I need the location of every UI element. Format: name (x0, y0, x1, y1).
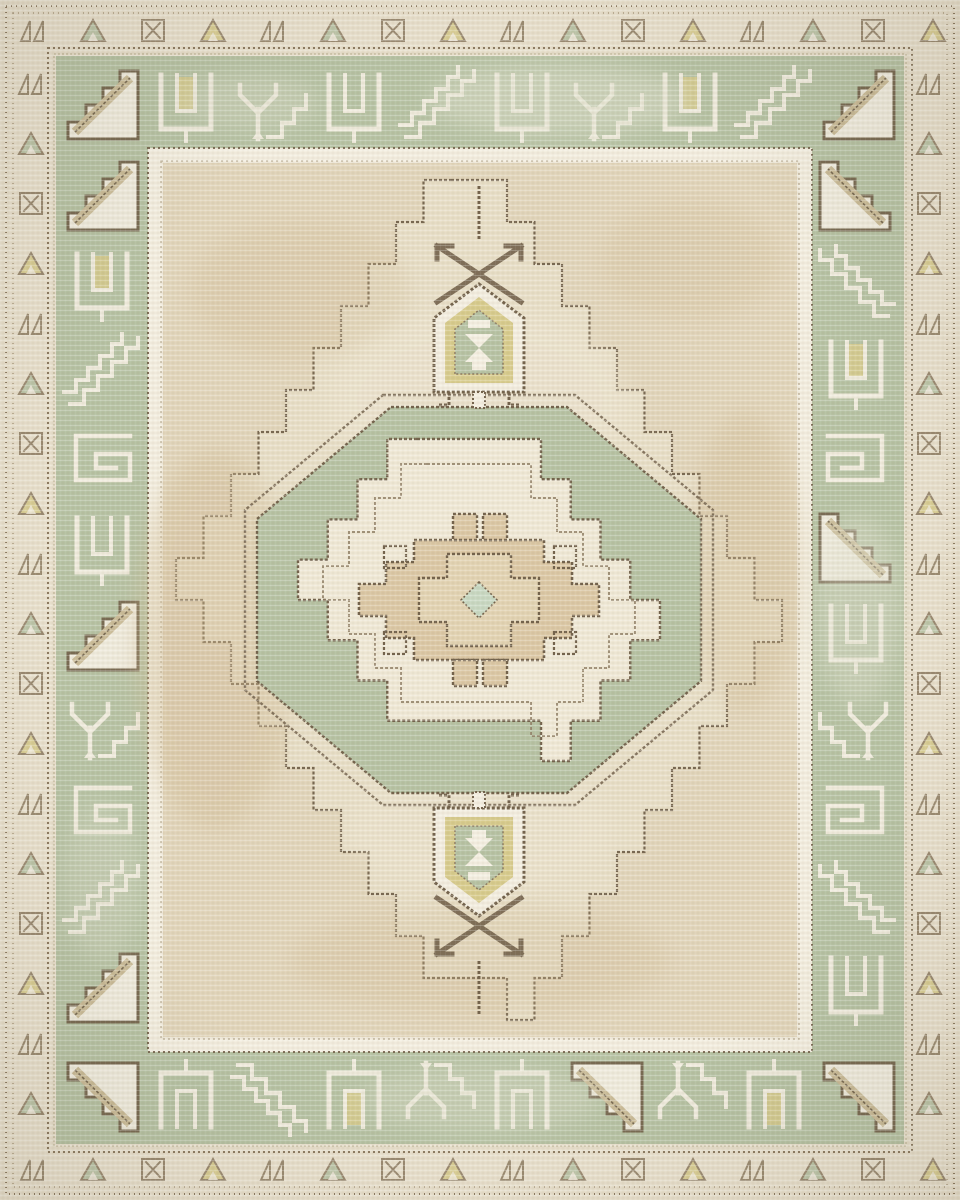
weave-texture-vertical (0, 0, 960, 1200)
rug-image: Vintage-style Anatolian medallion area r… (0, 0, 960, 1200)
rug-photo: Vintage-style Anatolian medallion area r… (0, 0, 960, 1200)
